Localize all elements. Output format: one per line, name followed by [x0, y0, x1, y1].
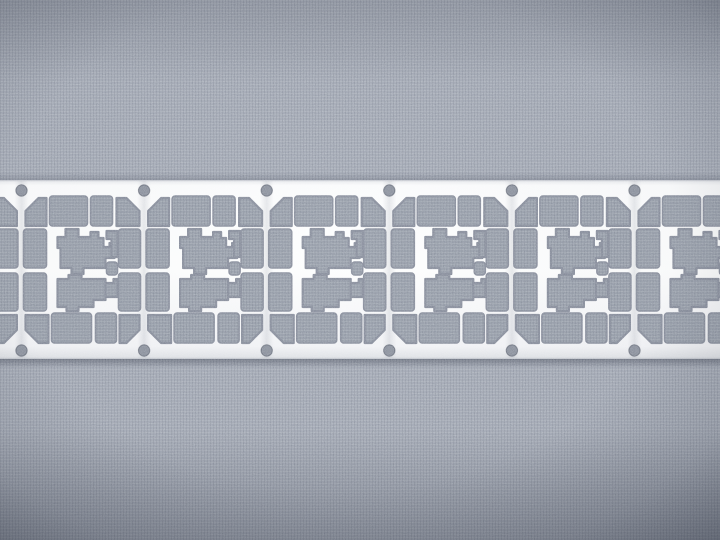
- leadframe-photo: [0, 0, 720, 540]
- vignette-overlay: [0, 0, 720, 540]
- photo-stage: [0, 0, 720, 540]
